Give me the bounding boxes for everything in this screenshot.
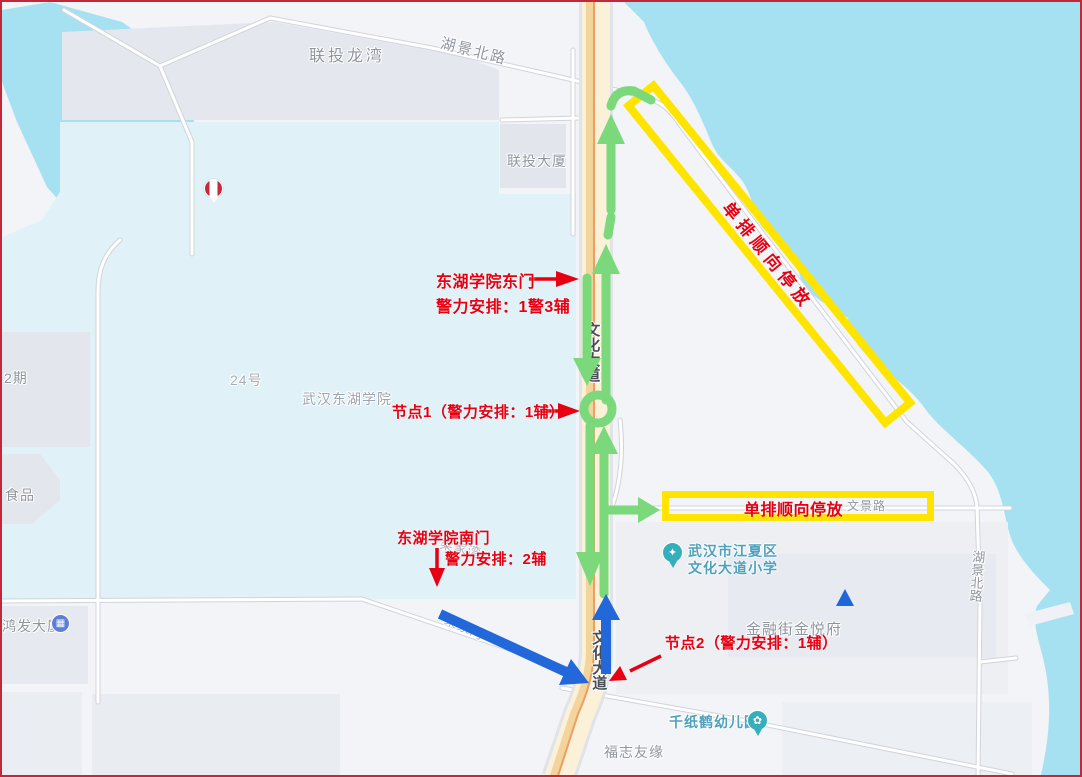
annotation-south-gate-title: 东湖学院南门 — [397, 527, 490, 548]
green-northbound-dash — [608, 217, 611, 235]
annotation-east-gate-title: 东湖学院东门 — [436, 268, 535, 292]
red-arrow-east-gate — [529, 271, 579, 287]
green-northbound-arrow — [592, 244, 620, 400]
route-overlay-layer — [2, 2, 1082, 777]
green-northbound-arrow-upper — [597, 114, 625, 210]
map-canvas[interactable]: 联投龙湾 湖景北路 联投大厦 24号 武汉东湖学院 2期 食品 鸿发大厦 福志友… — [0, 0, 1082, 777]
annotation-east-gate-detail: 警力安排：1警3辅 — [436, 293, 570, 317]
green-southbound-arrow-upper — [573, 278, 601, 386]
green-branch-east-arrow — [604, 497, 660, 523]
annotation-south-gate-detail: 警力安排：2辅 — [445, 548, 547, 569]
annotation-node1: 节点1（警力安排：1辅） — [392, 401, 565, 422]
blue-route-arrow-southeast — [440, 614, 589, 685]
red-arrow-south-gate — [429, 548, 445, 587]
annotation-node2: 节点2（警力安排：1辅） — [665, 632, 838, 653]
red-arrow-node2 — [609, 656, 661, 681]
blue-route-arrow-north — [592, 594, 620, 674]
green-connector-to-parking — [611, 91, 651, 106]
